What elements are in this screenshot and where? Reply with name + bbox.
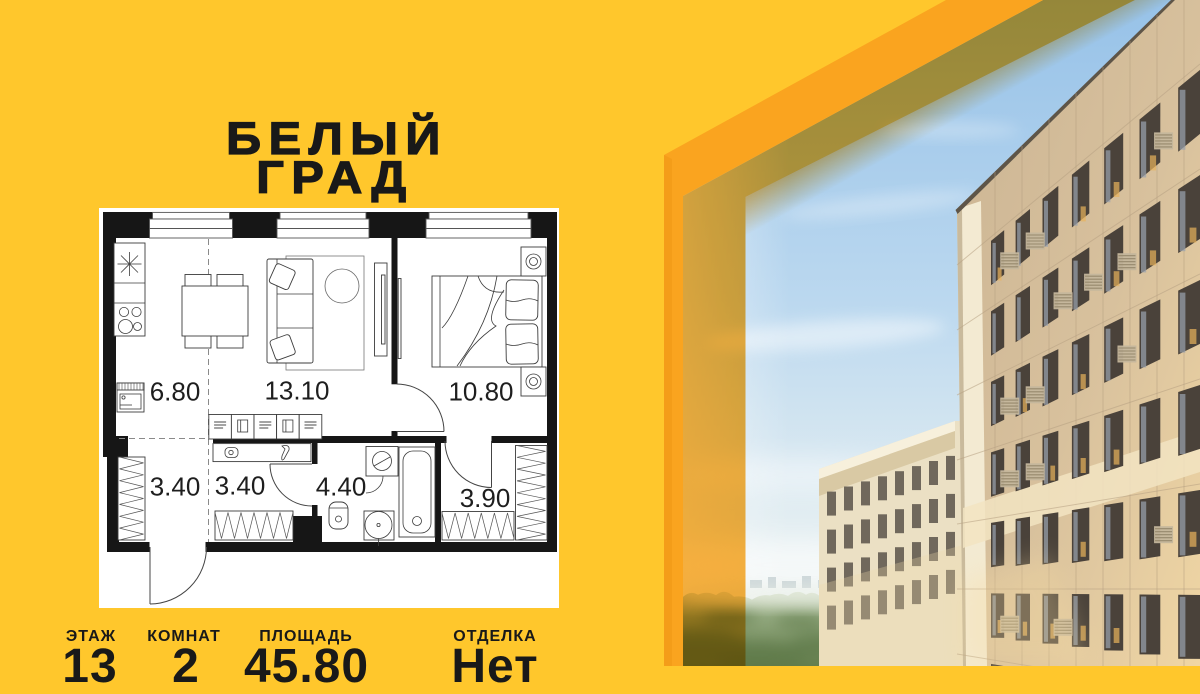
svg-text:3.40: 3.40 [215, 471, 266, 501]
svg-text:13.10: 13.10 [264, 376, 329, 406]
svg-text:10.80: 10.80 [448, 377, 513, 407]
svg-text:3.90: 3.90 [460, 483, 511, 513]
svg-text:6.80: 6.80 [150, 377, 201, 407]
svg-text:4.40: 4.40 [316, 472, 367, 502]
svg-text:3.40: 3.40 [150, 472, 201, 502]
